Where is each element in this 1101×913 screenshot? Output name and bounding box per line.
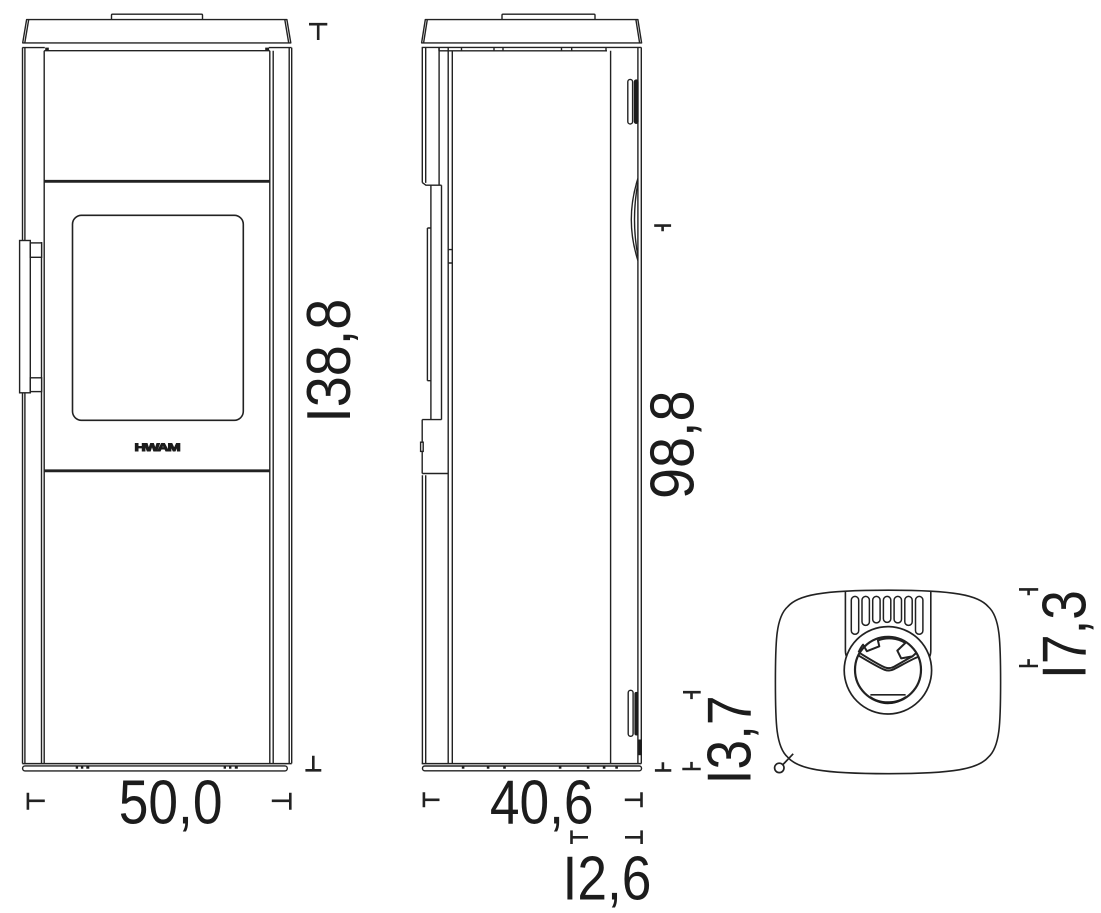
svg-text:98,8: 98,8 [639,390,707,499]
svg-text:40,6: 40,6 [490,769,594,838]
svg-text:I7,3: I7,3 [1031,590,1100,679]
svg-text:I2,6: I2,6 [563,845,652,913]
svg-text:I38,8: I38,8 [295,299,363,423]
svg-text:HWAM: HWAM [135,442,181,454]
svg-text:I3,7: I3,7 [696,695,765,784]
svg-text:50,0: 50,0 [119,769,223,838]
